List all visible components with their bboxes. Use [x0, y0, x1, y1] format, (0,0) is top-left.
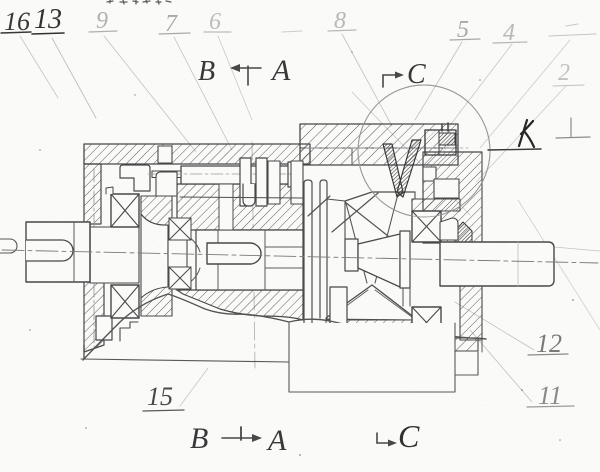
svg-text:С: С: [398, 418, 420, 454]
svg-text:А: А: [266, 424, 287, 457]
svg-text:13: 13: [34, 4, 62, 35]
svg-text:11: 11: [538, 381, 562, 410]
svg-text:9: 9: [96, 8, 108, 34]
svg-text:15: 15: [147, 382, 173, 411]
svg-text:2: 2: [558, 60, 570, 86]
svg-text:6: 6: [209, 9, 221, 35]
svg-text:В: В: [198, 56, 215, 87]
svg-text:А: А: [270, 54, 291, 87]
svg-text:С: С: [407, 59, 426, 90]
svg-text:В: В: [190, 422, 208, 455]
